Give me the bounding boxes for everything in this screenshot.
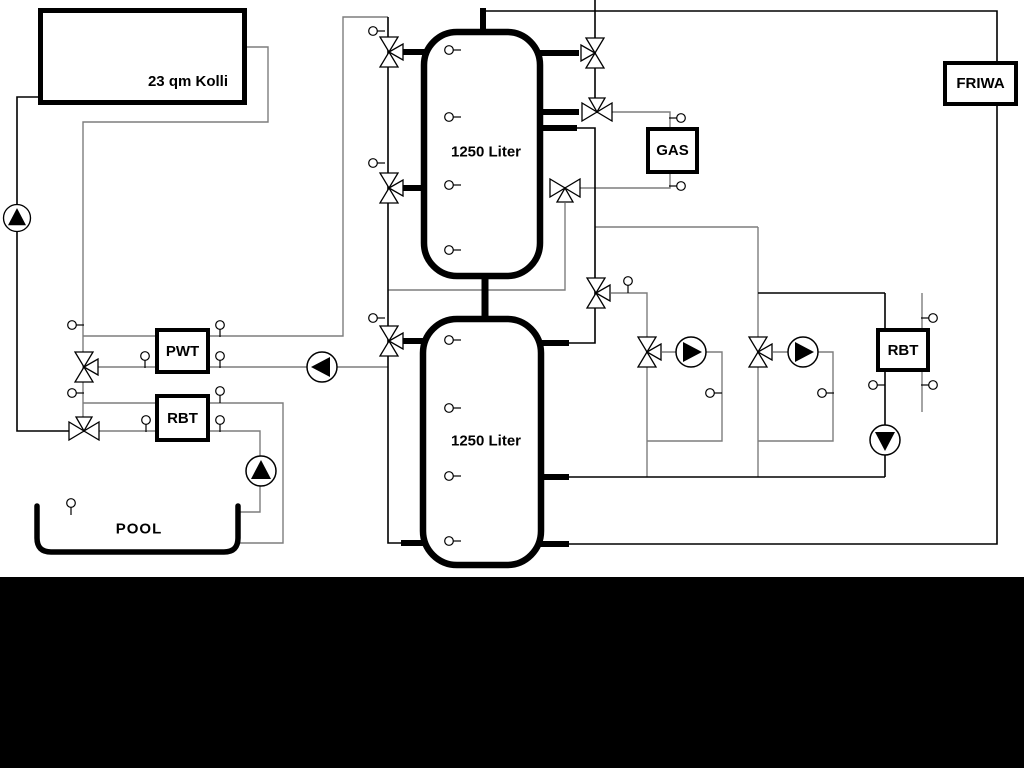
hydraulic-schematic-canvas: 23 qm Kolli GAS FRIWA PWT RBT RBT 1250 L…	[0, 0, 1024, 768]
three-way-valve-pwt-icon	[75, 352, 98, 382]
pipe-top-friwa-loop	[483, 11, 997, 544]
sensor-circuit1-return-icon	[706, 389, 722, 398]
three-way-valve-circuit2-icon	[749, 337, 772, 367]
three-way-valve-tank1-upper-icon	[380, 37, 403, 67]
solar-collector-box: 23 qm Kolli	[38, 8, 247, 105]
pipe-main-riser	[567, 128, 595, 343]
buffer-tank-top-label: 1250 Liter	[451, 144, 521, 161]
friwa-station-label: FRIWA	[956, 75, 1004, 92]
sensor-rbt-left-bottom-out-icon	[216, 416, 225, 432]
sensor-valve1-icon	[369, 27, 385, 36]
rbt-left-box: RBT	[155, 394, 210, 442]
sensor-rbt-left-inlet-icon	[68, 389, 84, 398]
bottom-letterbox	[0, 577, 1024, 768]
pwt-heat-exchanger-label: PWT	[166, 343, 199, 360]
sensor-valve3-icon	[369, 314, 385, 323]
sensor-gas-supply-icon	[669, 114, 685, 123]
pool-label: POOL	[116, 521, 163, 538]
sensor-rbt-right-drop-icon	[869, 381, 885, 390]
rbt-left-label: RBT	[167, 410, 198, 427]
sensor-rbt-right-bottom-icon	[921, 381, 937, 390]
pump-right-circuit1-icon	[676, 337, 706, 367]
three-way-valve-tank2-icon	[380, 326, 403, 356]
three-way-valve-gas-return-icon	[550, 179, 580, 202]
three-way-valve-circuit1-icon	[638, 337, 661, 367]
gas-boiler-label: GAS	[656, 142, 689, 159]
sensor-valve2-icon	[369, 159, 385, 168]
pump-left-pwt-icon	[307, 352, 337, 382]
sensor-circuit2-return-icon	[818, 389, 834, 398]
pump-right-circuit2-icon	[788, 337, 818, 367]
three-way-valve-mixing-icon	[587, 278, 610, 308]
sensor-mixing-out-icon	[624, 277, 633, 293]
rbt-right-label: RBT	[888, 342, 919, 359]
sensor-gas-return-icon	[669, 182, 685, 191]
sensor-rbt-right-top-icon	[921, 314, 937, 323]
pipe-collector-supply	[17, 97, 70, 431]
pump-up-pool-icon	[246, 456, 276, 486]
pump-up-solar-icon	[3, 205, 30, 232]
sensor-rbt-left-top-out-icon	[216, 387, 225, 403]
sensor-rbt-left-bottom-icon	[142, 416, 151, 432]
sensor-pool-icon	[67, 499, 76, 515]
three-way-valve-tank1-top-right-icon	[581, 38, 604, 68]
pipe-mixing-out	[611, 293, 647, 477]
buffer-tank-bottom-label: 1250 Liter	[451, 433, 521, 450]
sensor-pwt-bottom-in-icon	[141, 352, 150, 368]
friwa-station-box: FRIWA	[943, 61, 1018, 106]
pump-down-rbt-icon	[870, 425, 900, 455]
solar-collector-label: 23 qm Kolli	[148, 73, 228, 90]
pipe-tank-left-column	[388, 17, 403, 543]
gas-boiler-box: GAS	[646, 127, 699, 174]
sensor-pwt-inlet-icon	[68, 321, 84, 330]
sensor-pwt-top-out-icon	[216, 321, 225, 337]
three-way-valve-rbt-left-icon	[69, 417, 99, 440]
pipe-gas-supply	[612, 112, 670, 127]
sensor-pwt-bottom-out-icon	[216, 352, 225, 368]
rbt-right-box: RBT	[876, 328, 930, 372]
three-way-valve-tank1-lower-icon	[380, 173, 403, 203]
pwt-heat-exchanger-box: PWT	[155, 328, 210, 374]
pipe-gas-return	[580, 174, 670, 188]
three-way-valve-gas-supply-icon	[582, 98, 612, 121]
